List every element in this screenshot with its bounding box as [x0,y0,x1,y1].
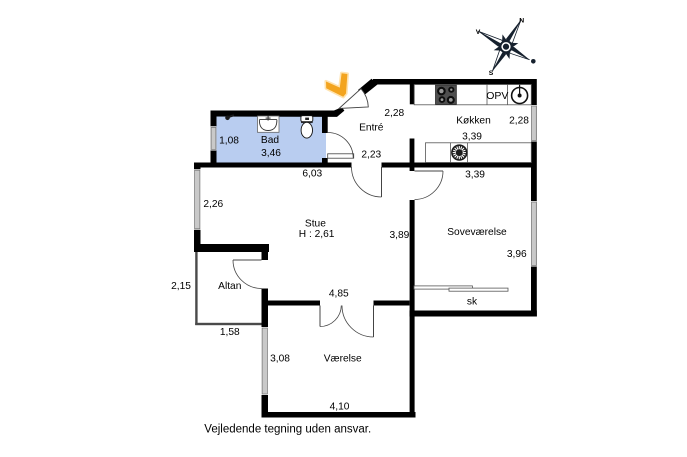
svg-text:3,46: 3,46 [261,148,281,159]
svg-text:OPV: OPV [486,90,508,102]
svg-text:Altan: Altan [218,281,241,292]
svg-text:3,08: 3,08 [270,354,290,365]
svg-text:S: S [489,70,494,77]
svg-text:Værelse: Værelse [324,354,362,365]
svg-text:Stue: Stue [305,219,326,230]
svg-text:3,39: 3,39 [465,169,485,180]
svg-text:N: N [519,17,524,24]
svg-text:4,10: 4,10 [330,401,350,412]
svg-text:Soveværelse: Soveværelse [447,227,507,238]
svg-text:Bad: Bad [261,135,279,146]
svg-text:6,03: 6,03 [302,168,322,179]
svg-text:3,96: 3,96 [507,249,527,260]
svg-text:2,15: 2,15 [171,281,191,292]
svg-text:V: V [476,29,481,36]
svg-text:2,23: 2,23 [361,150,381,161]
svg-text:2,28: 2,28 [384,108,404,119]
svg-text:2,28: 2,28 [509,115,529,126]
svg-text:H : 2,61: H : 2,61 [299,229,335,240]
svg-text:Vejledende tegning uden ansvar: Vejledende tegning uden ansvar. [204,424,371,436]
svg-text:3,89: 3,89 [389,230,409,241]
svg-text:1,08: 1,08 [219,136,239,147]
svg-text:2,26: 2,26 [203,199,223,210]
svg-text:1,58: 1,58 [220,327,240,338]
svg-text:3,39: 3,39 [462,132,482,143]
svg-text:Køkken: Køkken [456,115,491,126]
svg-text:sk: sk [467,297,478,308]
svg-text:Entré: Entré [359,123,384,134]
svg-text:4,85: 4,85 [329,288,349,299]
